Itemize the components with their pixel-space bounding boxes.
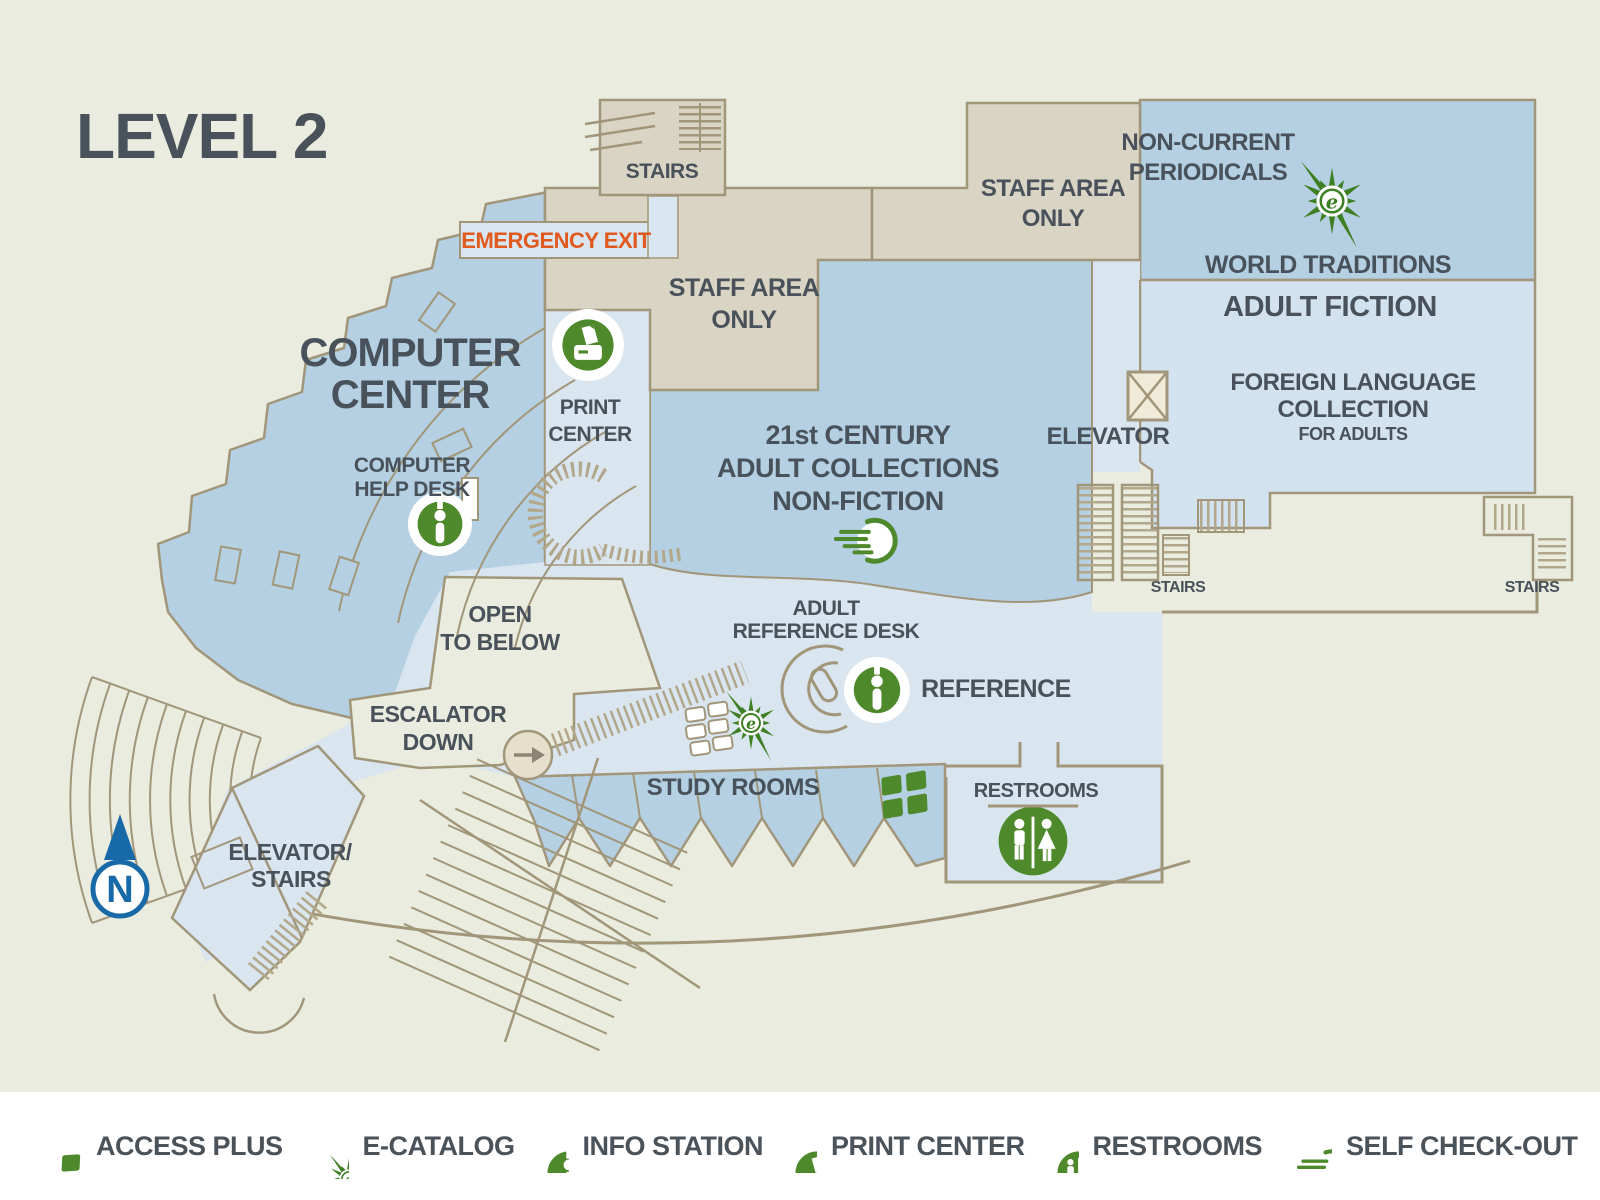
label-escalator-1: ESCALATOR [370, 701, 507, 727]
label-stairs-top: STAIRS [626, 160, 699, 183]
label-c21-2: ADULT COLLECTIONS [717, 453, 999, 483]
label-emergency-exit: EMERGENCY EXIT [461, 228, 651, 253]
label-open-below-2: TO BELOW [440, 629, 560, 655]
label-foreign-2: COLLECTION [1278, 396, 1429, 423]
label-foreign-3: FOR ADULTS [1299, 424, 1408, 444]
restrooms-icon [1025, 1119, 1079, 1173]
label-elevator-stairs-1: ELEVATOR/ [228, 839, 352, 865]
label-elevator: ELEVATOR [1047, 423, 1170, 450]
label-computer-center-2: CENTER [331, 373, 491, 417]
elevator-x-icon [1128, 372, 1167, 420]
legend-item-info-station: INFO STATION [515, 1119, 763, 1173]
self-checkout-icon [1262, 1123, 1332, 1169]
label-adult-ref-2: REFERENCE DESK [733, 620, 920, 643]
label-staff-right-1: STAFF AREA [981, 175, 1125, 202]
label-stairs-center: STAIRS [1151, 579, 1206, 596]
legend-label: RESTROOMS [1093, 1131, 1263, 1162]
catalog-desks [683, 701, 733, 756]
label-reference: REFERENCE [921, 675, 1071, 703]
label-periodicals-1: NON-CURRENT [1121, 129, 1295, 156]
map-legend: ACCESS PLUS E-CATALOG INFO STATION PRINT… [0, 1092, 1600, 1200]
legend-label: SELF CHECK-OUT [1346, 1131, 1578, 1162]
label-foreign-1: FOREIGN LANGUAGE [1230, 369, 1476, 396]
label-computer-center-1: COMPUTER [300, 331, 522, 375]
legend-label: E-CATALOG [363, 1131, 515, 1162]
legend-item-restrooms: RESTROOMS [1025, 1119, 1263, 1173]
label-help-desk-2: HELP DESK [354, 478, 470, 501]
label-open-below-1: OPEN [468, 601, 531, 627]
label-periodicals-2: PERIODICALS [1129, 159, 1288, 186]
label-help-desk-1: COMPUTER [354, 454, 471, 477]
info-station-icon-helpdesk [408, 492, 472, 556]
label-staff-center-2: ONLY [711, 306, 777, 334]
label-staff-right-2: ONLY [1022, 205, 1085, 232]
legend-item-e-catalog: E-CATALOG [283, 1113, 515, 1179]
label-print-center-1: PRINT [560, 396, 621, 419]
label-escalator-2: DOWN [403, 729, 474, 755]
legend-item-print-center: PRINT CENTER [763, 1119, 1025, 1173]
label-elevator-stairs-2: STAIRS [251, 866, 331, 892]
legend-label: PRINT CENTER [831, 1131, 1025, 1162]
info-station-icon-reference [844, 657, 910, 723]
compass-letter: N [106, 869, 133, 911]
legend-label: INFO STATION [583, 1131, 763, 1162]
e-catalog-icon [283, 1113, 349, 1179]
legend-item-access-plus: ACCESS PLUS [28, 1119, 283, 1173]
legend-label: ACCESS PLUS [96, 1131, 283, 1162]
label-c21-1: 21st CENTURY [765, 420, 951, 450]
access-plus-icon [28, 1119, 82, 1173]
info-station-icon [515, 1119, 569, 1173]
label-world-traditions: WORLD TRADITIONS [1205, 251, 1451, 279]
label-adult-fiction: ADULT FICTION [1223, 291, 1437, 323]
label-print-center-2: CENTER [548, 423, 632, 446]
label-c21-3: NON-FICTION [772, 486, 943, 516]
floor-plan-canvas: e [0, 0, 1600, 1092]
print-center-icon [763, 1119, 817, 1173]
label-study-rooms: STUDY ROOMS [647, 774, 820, 801]
page-title: LEVEL 2 [76, 100, 327, 172]
library-floor-map-level2: e [0, 0, 1600, 1200]
label-restrooms: RESTROOMS [974, 780, 1099, 802]
legend-item-self-checkout: SELF CHECK-OUT [1262, 1123, 1578, 1169]
label-stairs-right: STAIRS [1505, 579, 1560, 596]
label-adult-ref-1: ADULT [792, 597, 860, 620]
label-staff-center-1: STAFF AREA [669, 274, 820, 302]
stairs-connector [648, 196, 678, 258]
print-center-icon-map [552, 309, 624, 381]
